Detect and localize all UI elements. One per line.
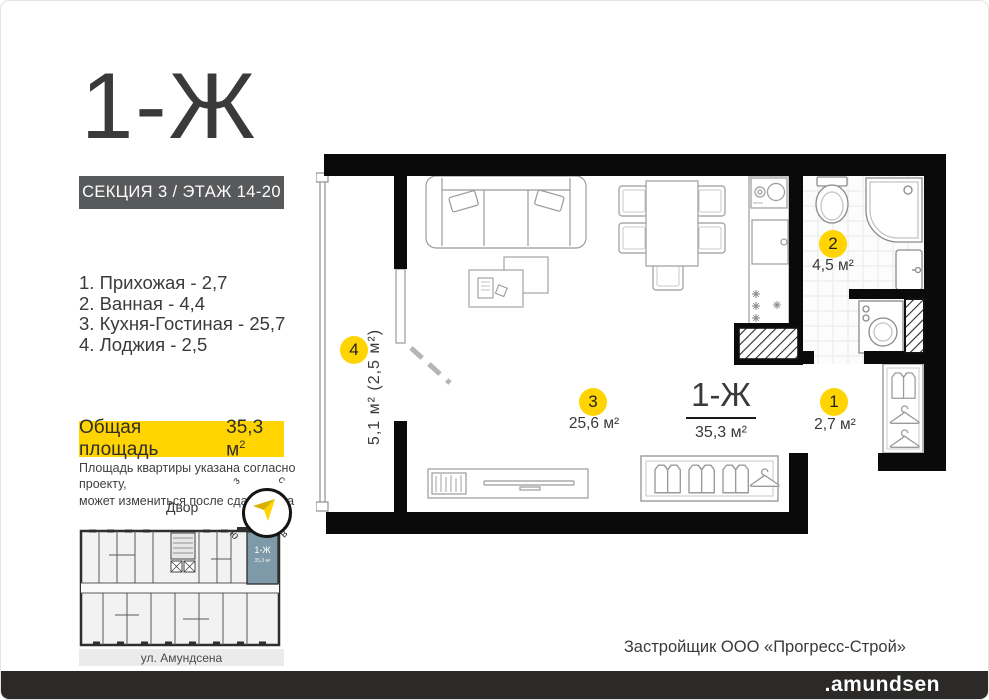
wardrobe (641, 456, 779, 501)
minimap-highlighted-unit: 1-Ж 35,3 м² (247, 532, 278, 584)
minimap-unit-area: 35,3 м² (254, 558, 271, 564)
room-list-item: 4. Лоджия - 2,5 (79, 335, 285, 356)
shower-icon (866, 178, 922, 242)
tv-console (428, 469, 588, 498)
room-list-item: 1. Прихожая - 2,7 (79, 273, 285, 294)
hallway-closet (883, 364, 923, 453)
coffee-table (469, 257, 548, 307)
room-list: 1. Прихожая - 2,7 2. Ванная - 4,4 3. Кух… (79, 273, 285, 355)
bath-sink-icon (896, 250, 922, 290)
room-list-item: 2. Ванная - 4,4 (79, 294, 285, 315)
shirt-icon (689, 465, 714, 493)
building-minimap: 1-Ж 35,3 м² (79, 525, 284, 649)
room-marker-bathroom: 2 (819, 230, 847, 258)
section-floor-badge: СЕКЦИЯ 3 / ЭТАЖ 14-20 (79, 176, 284, 209)
floor-plan (316, 154, 946, 534)
sofa (426, 176, 586, 248)
street-label: ул. Амундсена (79, 649, 284, 666)
dining-table (646, 181, 698, 266)
room-marker-kitchen-living: 3 (579, 388, 607, 416)
unit-label: 1-Ж 35,3 м² (675, 376, 767, 442)
loggia-glazing (316, 173, 328, 511)
balcony-window (396, 269, 405, 343)
total-area-value: 35,3 м2 (226, 417, 284, 461)
compass-needle (245, 491, 283, 529)
loggia-area-label: 5,1 м² (2,5 м²) (366, 287, 384, 487)
apartment-title: 1-Ж (81, 59, 257, 153)
unit-area: 35,3 м² (675, 424, 767, 442)
unit-title: 1-Ж (686, 376, 756, 419)
kitchen-vent-shaft (739, 328, 798, 359)
room-list-item: 3. Кухня-Гостиная - 25,7 (79, 314, 285, 335)
balcony-door (411, 348, 450, 383)
flyer-page: 1-Ж СЕКЦИЯ 3 / ЭТАЖ 14-20 1. Прихожая - … (0, 0, 989, 700)
room-marker-loggia: 4 (340, 336, 368, 364)
footer-bar: .amundsen (1, 671, 988, 699)
total-area-label: Общая площадь (79, 417, 217, 461)
dining-set (619, 181, 725, 290)
brand-logo: .amundsen (825, 671, 940, 699)
yard-label: Двор (166, 499, 198, 515)
washing-machine-icon (859, 301, 903, 353)
hallway-area-label: 2,7 м² (795, 416, 875, 434)
kitchen-counter (749, 176, 789, 331)
total-area-badge: Общая площадь 35,3 м2 (79, 421, 284, 457)
shirt-icon (892, 373, 915, 398)
toilet-icon (816, 177, 848, 223)
bathroom-area-label: 4,5 м² (793, 257, 873, 275)
kitchen-living-area-label: 25,6 м² (549, 415, 639, 433)
developer-label: Застройщик ООО «Прогресс-Строй» (624, 638, 906, 657)
kitchen-sink-icon (752, 220, 788, 264)
minimap-unit-label: 1-Ж (254, 545, 271, 555)
shirt-icon (655, 465, 680, 493)
room-marker-hallway: 1 (820, 388, 848, 416)
bathroom-vent-shaft (905, 299, 924, 353)
shirt-icon (723, 465, 748, 493)
